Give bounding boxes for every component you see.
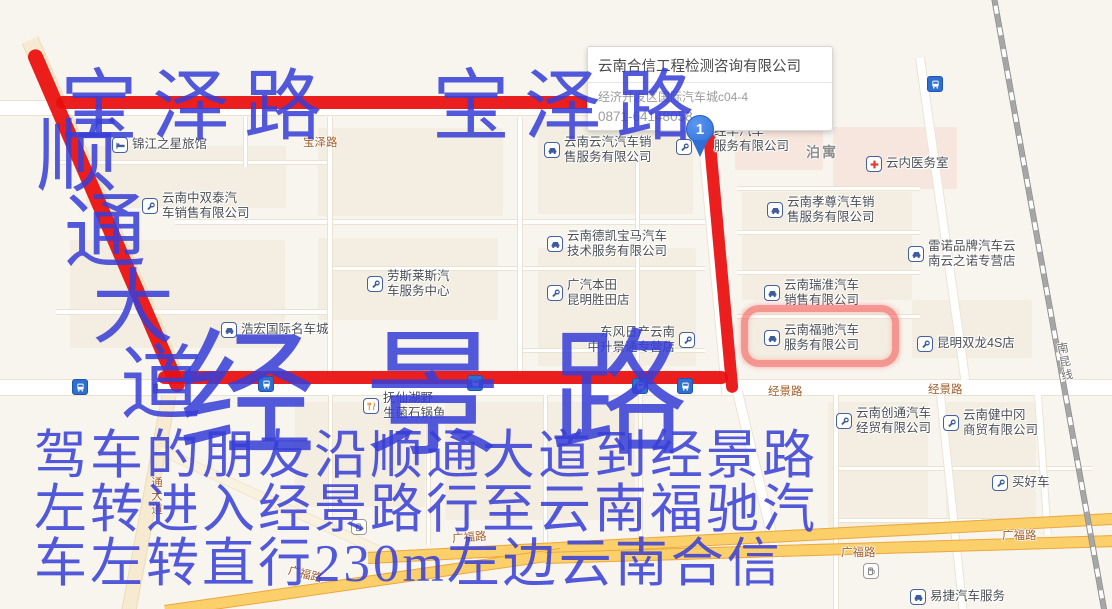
annotation-text: 驾车的朋友沿顺通大道到经景路 <box>34 430 818 483</box>
wrench-icon[interactable] <box>836 413 852 429</box>
poi-label[interactable]: 云南瑞淮汽车销售有限公司 <box>784 278 859 309</box>
road-minor <box>737 230 920 235</box>
car-icon[interactable] <box>764 285 780 301</box>
road-name-label: 经景路 <box>768 383 803 399</box>
poi-label[interactable]: 易捷汽车服务 <box>930 589 1005 605</box>
poi-label[interactable]: 昆明双龙4S店 <box>937 336 1015 352</box>
car-icon[interactable] <box>910 589 926 605</box>
road-name-label: 南昆线 <box>1053 341 1075 384</box>
road-minor <box>175 219 705 225</box>
road-minor <box>737 270 920 275</box>
poi-label[interactable]: 雷诺品牌汽车云南云之诺专营店 <box>928 239 1016 270</box>
poi-label[interactable]: 云南健中冈商贸有限公司 <box>963 408 1038 439</box>
area-name-label: 泊寓 <box>806 142 838 162</box>
road-name-label: 广福路 <box>841 544 876 560</box>
road-minor <box>737 186 920 191</box>
gas-station-icon[interactable] <box>863 563 879 579</box>
car-icon[interactable] <box>547 236 563 252</box>
highlight-box <box>741 305 899 367</box>
poi-label[interactable]: 劳斯莱斯汽车服务中心 <box>387 269 450 300</box>
wrench-icon[interactable] <box>992 475 1008 491</box>
car-icon[interactable] <box>767 202 783 218</box>
wrench-icon[interactable] <box>943 415 959 431</box>
poi-label[interactable]: 广汽本田昆明胜田店 <box>567 278 630 309</box>
road-name-label: 经景路 <box>928 381 963 397</box>
bus-stop-icon[interactable] <box>927 76 943 92</box>
cross-icon[interactable] <box>866 156 882 172</box>
poi-label[interactable]: 云南创通汽车经贸有限公司 <box>856 406 931 437</box>
poi-label[interactable]: 云内医务室 <box>886 156 949 172</box>
road-minor <box>836 466 1092 471</box>
wrench-icon[interactable] <box>367 276 383 292</box>
poi-label[interactable]: 云南德凯宝马汽车技术服务有限公司 <box>567 229 667 260</box>
road-name-label: 广福路 <box>1002 527 1037 543</box>
annotation-text: 车左转直行230m左边云南合信 <box>34 538 783 591</box>
poi-label[interactable]: 云南中双泰汽车销售有限公司 <box>162 191 250 222</box>
annotation-text: 宝泽路 <box>432 68 708 146</box>
annotation-text: 左转进入经景路行至云南福驰汽 <box>34 484 818 537</box>
bus-stop-icon[interactable] <box>72 379 88 395</box>
poi-label[interactable]: 云南孝尊汽车销售服务有限公司 <box>787 195 875 226</box>
poi-label[interactable]: 买好车 <box>1012 475 1050 491</box>
wrench-icon[interactable] <box>547 285 563 301</box>
wrench-icon[interactable] <box>917 336 933 352</box>
map-canvas[interactable]: 宝泽路经景路经景路广福路广福路广福路广福路通大道南昆线 云南合信工程检测咨询有限… <box>0 0 1112 609</box>
car-icon[interactable] <box>908 246 924 262</box>
